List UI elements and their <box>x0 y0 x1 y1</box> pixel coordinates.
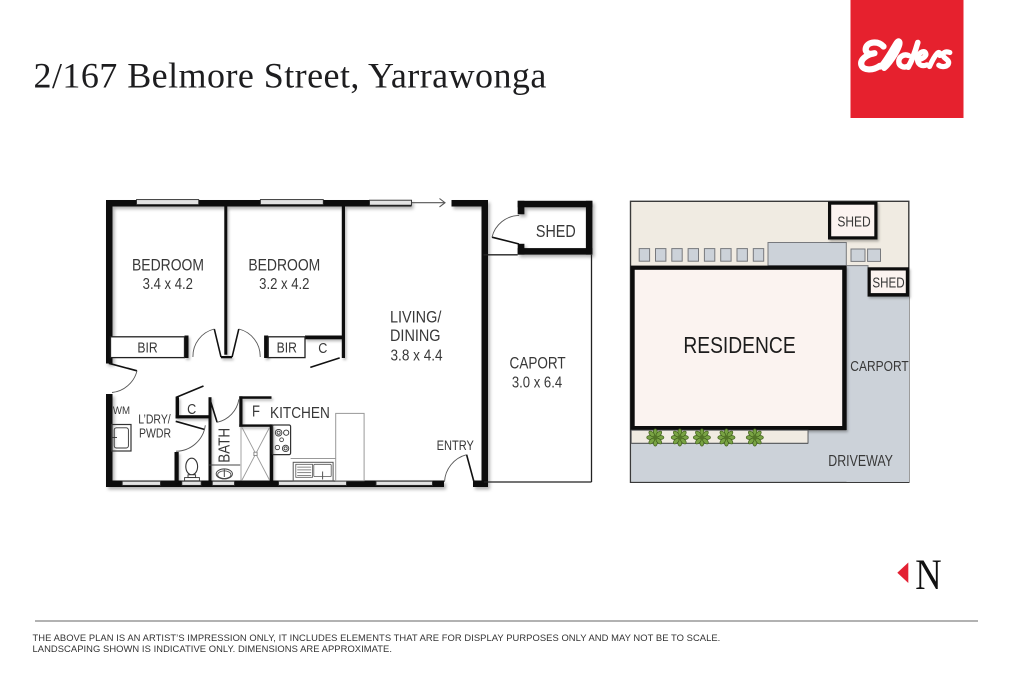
svg-text:SHED: SHED <box>536 223 576 242</box>
svg-text:2/167 Belmore Street, Yarrawon: 2/167 Belmore Street, Yarrawonga <box>34 56 547 96</box>
svg-text:BEDROOM: BEDROOM <box>248 256 320 275</box>
svg-text:3.0 x 6.4: 3.0 x 6.4 <box>512 374 562 391</box>
svg-text:RESIDENCE: RESIDENCE <box>683 332 795 358</box>
svg-text:DRIVEWAY: DRIVEWAY <box>828 452 893 470</box>
svg-text:N: N <box>915 550 941 598</box>
svg-text:C: C <box>318 339 327 356</box>
svg-text:THE ABOVE PLAN IS AN ARTIST’S: THE ABOVE PLAN IS AN ARTIST’S IMPRESSION… <box>33 632 721 643</box>
svg-text:CAPORT: CAPORT <box>510 354 566 373</box>
svg-text:BIR: BIR <box>277 339 298 355</box>
svg-text:BIR: BIR <box>137 339 158 355</box>
svg-text:KITCHEN: KITCHEN <box>270 405 330 422</box>
svg-text:SHED: SHED <box>837 213 870 230</box>
svg-text:C: C <box>187 400 196 417</box>
svg-text:3.4 x 4.2: 3.4 x 4.2 <box>143 276 193 293</box>
svg-text:BATH: BATH <box>217 428 234 463</box>
svg-text:F: F <box>252 404 260 421</box>
svg-text:DINING: DINING <box>390 327 441 345</box>
svg-text:SHED: SHED <box>872 274 904 291</box>
svg-text:PWDR: PWDR <box>139 428 171 441</box>
svg-text:3.8 x 4.4: 3.8 x 4.4 <box>391 348 443 365</box>
svg-text:ENTRY: ENTRY <box>437 438 474 453</box>
svg-text:3.2 x 4.2: 3.2 x 4.2 <box>259 276 309 293</box>
svg-text:WM: WM <box>113 404 130 417</box>
svg-text:BEDROOM: BEDROOM <box>132 256 204 275</box>
svg-text:L’DRY/: L’DRY/ <box>138 414 171 427</box>
svg-text:CARPORT: CARPORT <box>850 358 908 375</box>
svg-text:LIVING/: LIVING/ <box>390 308 442 326</box>
svg-text:LANDSCAPING SHOWN IS INDICATIV: LANDSCAPING SHOWN IS INDICATIVE ONLY. DI… <box>33 643 393 654</box>
